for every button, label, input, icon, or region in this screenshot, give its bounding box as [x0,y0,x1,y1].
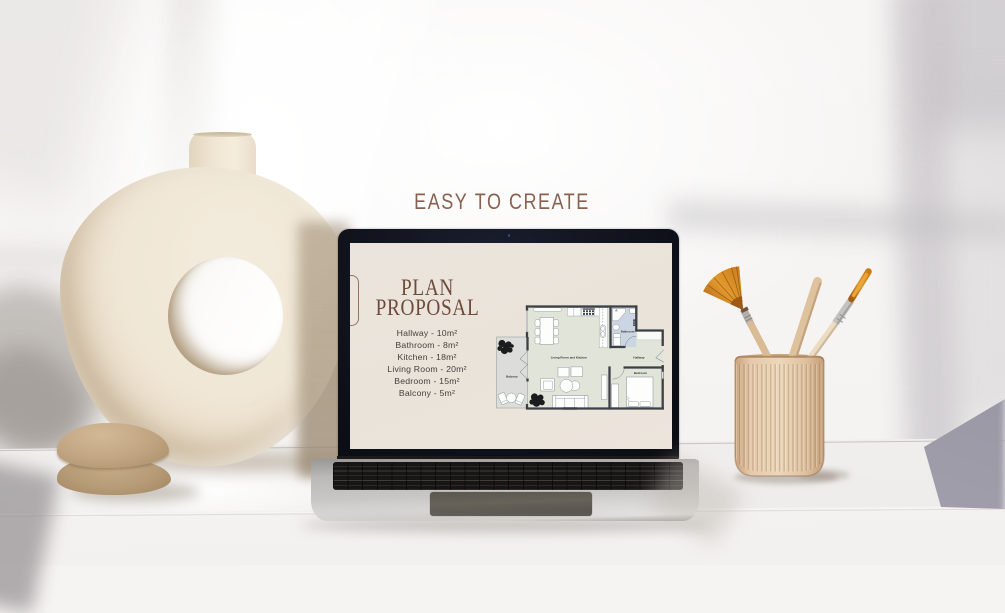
svg-text:Bedroom: Bedroom [634,371,648,375]
svg-text:Bathroom: Bathroom [621,329,635,333]
svg-text:Living Room and Kitchen: Living Room and Kitchen [551,355,587,359]
svg-text:Hallway: Hallway [633,355,645,359]
svg-text:Balcony: Balcony [506,374,518,378]
